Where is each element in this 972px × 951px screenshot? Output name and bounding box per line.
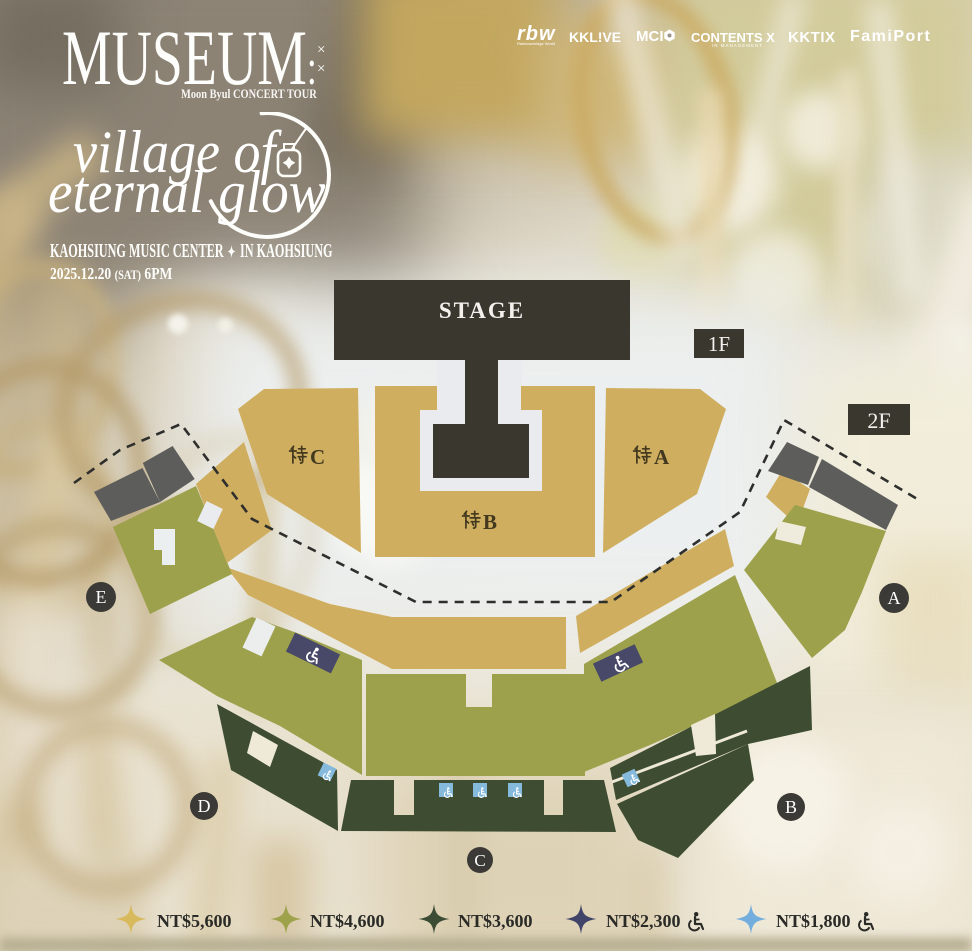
svg-text:E: E bbox=[96, 587, 107, 607]
svg-text:2F: 2F bbox=[867, 408, 890, 433]
svg-text:NT$5,600: NT$5,600 bbox=[157, 911, 232, 931]
svg-text:B: B bbox=[483, 510, 497, 534]
svg-text:A: A bbox=[888, 588, 901, 608]
svg-text:STAGE: STAGE bbox=[439, 298, 525, 323]
svg-text:C: C bbox=[474, 851, 485, 870]
svg-text:NT$4,600: NT$4,600 bbox=[310, 911, 385, 931]
svg-text:D: D bbox=[198, 796, 211, 816]
svg-text:1F: 1F bbox=[708, 332, 730, 356]
svg-text:C: C bbox=[310, 445, 325, 469]
svg-text:NT$2,300: NT$2,300 bbox=[606, 911, 681, 931]
svg-text:NT$1,800: NT$1,800 bbox=[776, 911, 851, 931]
svg-text:NT$3,600: NT$3,600 bbox=[458, 911, 533, 931]
svg-text:A: A bbox=[654, 445, 670, 469]
svg-text:B: B bbox=[785, 797, 797, 817]
